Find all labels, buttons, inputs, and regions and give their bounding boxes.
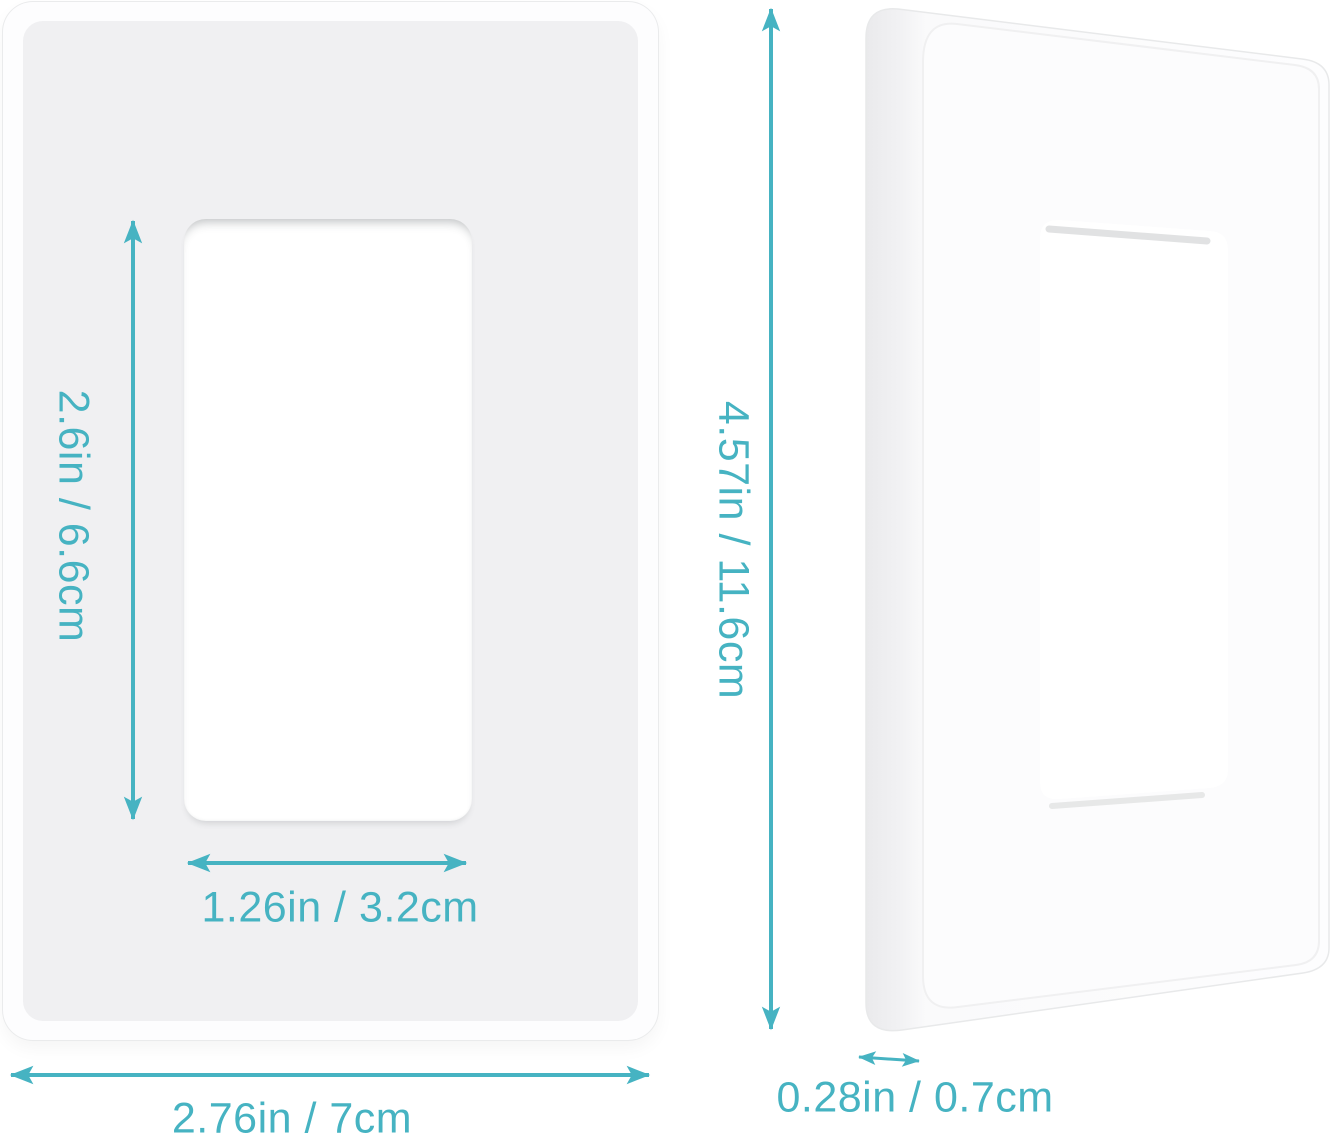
- side-plate-opening: [1040, 220, 1228, 799]
- plate-thickness-dimension-line: [859, 1057, 919, 1061]
- diagram-overlay: [0, 0, 1335, 1144]
- opening-width-label: 1.26in / 3.2cm: [201, 887, 478, 930]
- plate-height-label: 4.57in / 11.6cm: [712, 401, 755, 699]
- opening-height-label: 2.6in / 6.6cm: [52, 390, 95, 643]
- plate-thickness-label: 0.28in / 0.7cm: [776, 1077, 1053, 1120]
- side-plate: [866, 9, 1329, 1031]
- product-dimension-diagram: 2.6in / 6.6cm 1.26in / 3.2cm 2.76in / 7c…: [0, 0, 1335, 1144]
- plate-width-label: 2.76in / 7cm: [172, 1098, 412, 1141]
